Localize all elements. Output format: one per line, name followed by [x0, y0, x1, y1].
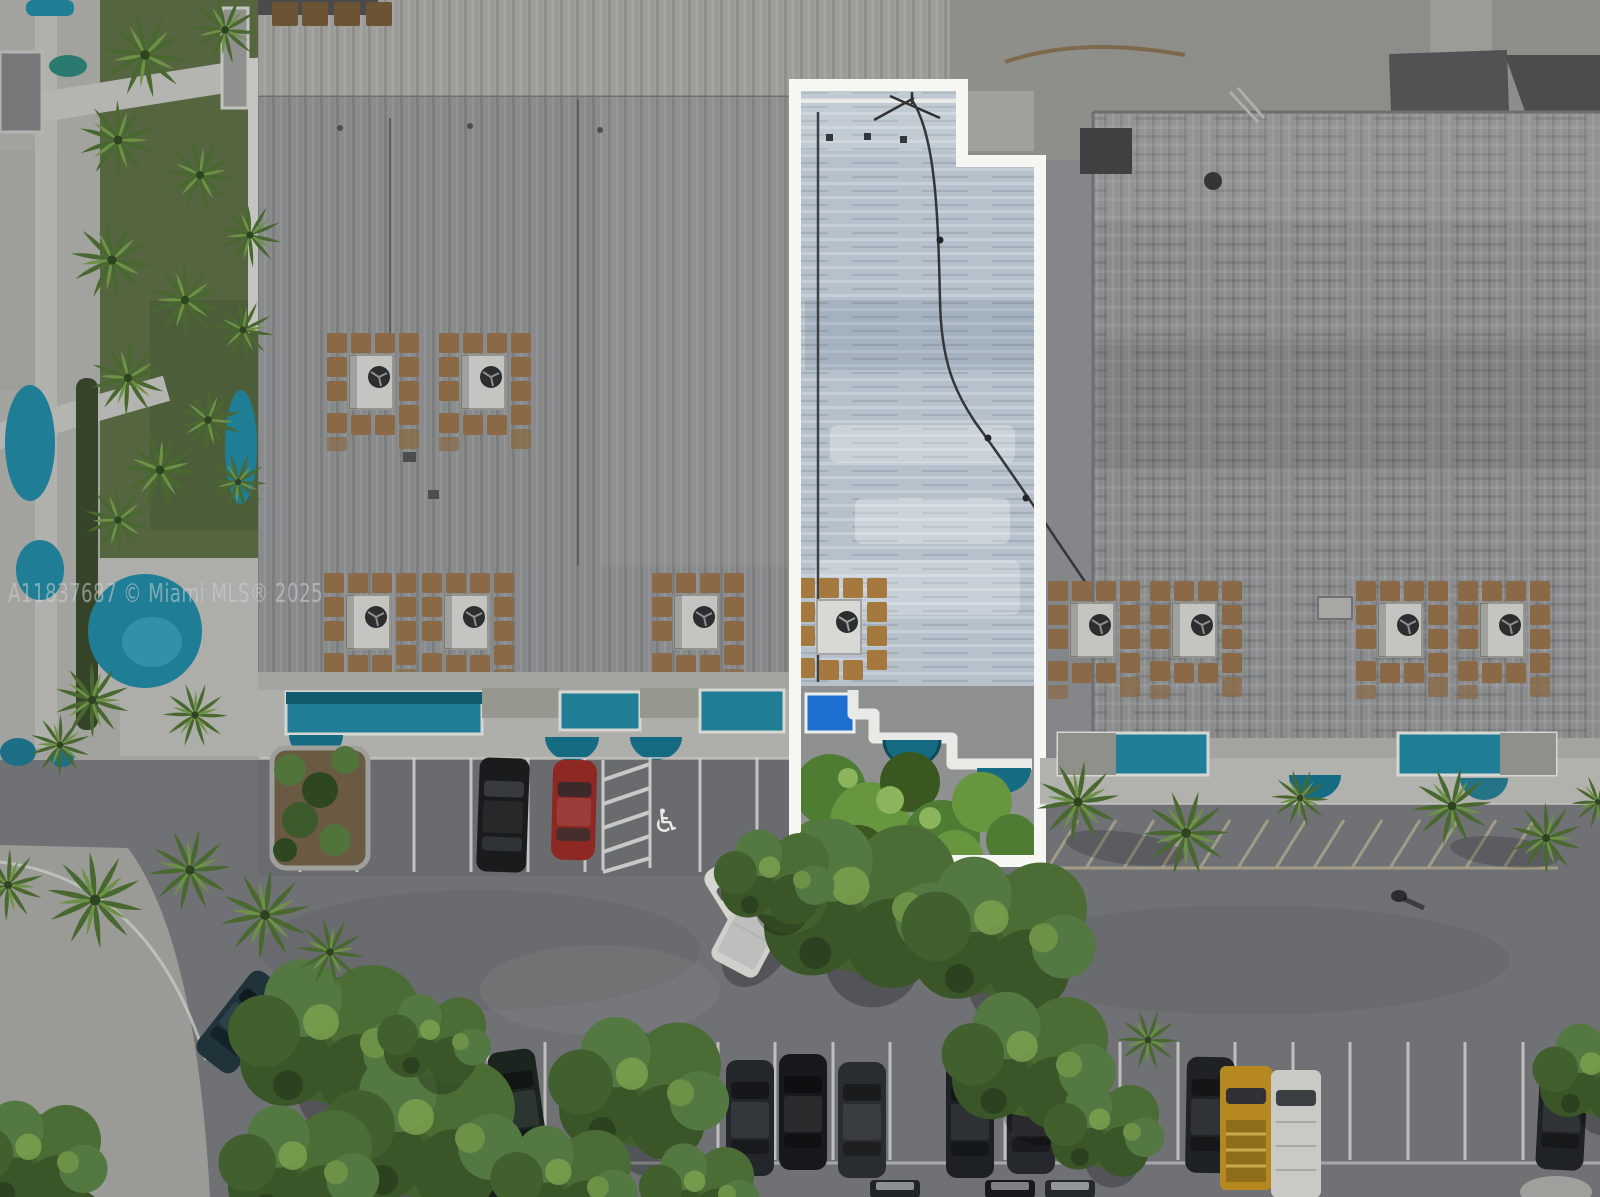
lap-pool: [560, 692, 640, 730]
lap-pool: [700, 690, 784, 732]
pool: [0, 738, 36, 766]
hedge-row: [76, 378, 98, 730]
porch-roof: [482, 688, 560, 718]
pool: [49, 55, 87, 77]
black-suv: [476, 757, 530, 873]
mls-watermark: A11837687 © Miami MLS® 2025: [8, 579, 323, 609]
roof-equipment-box: [1318, 597, 1352, 619]
pool: [5, 385, 55, 501]
handicap-icon: ♿: [652, 802, 681, 840]
dark-roof-patch: [1389, 50, 1509, 116]
red-car: [551, 759, 598, 860]
right-building-roof: [1048, 88, 1600, 758]
aerial-listing-photo: ♿: [0, 0, 1600, 1197]
rooftop-panel: [0, 52, 42, 132]
skylight-box: [1080, 128, 1132, 174]
yellow-truck: [1220, 1066, 1272, 1190]
parked-suv: [779, 1054, 827, 1170]
white-van-bottom: [1271, 1070, 1321, 1197]
aerial-scene: ♿: [0, 0, 1600, 1197]
roof-vent: [1204, 172, 1222, 190]
unit-pool: [806, 694, 854, 732]
landscape-island: [272, 746, 368, 868]
parked-car: [838, 1062, 886, 1178]
porch-roof: [640, 688, 700, 718]
pool: [26, 0, 74, 16]
